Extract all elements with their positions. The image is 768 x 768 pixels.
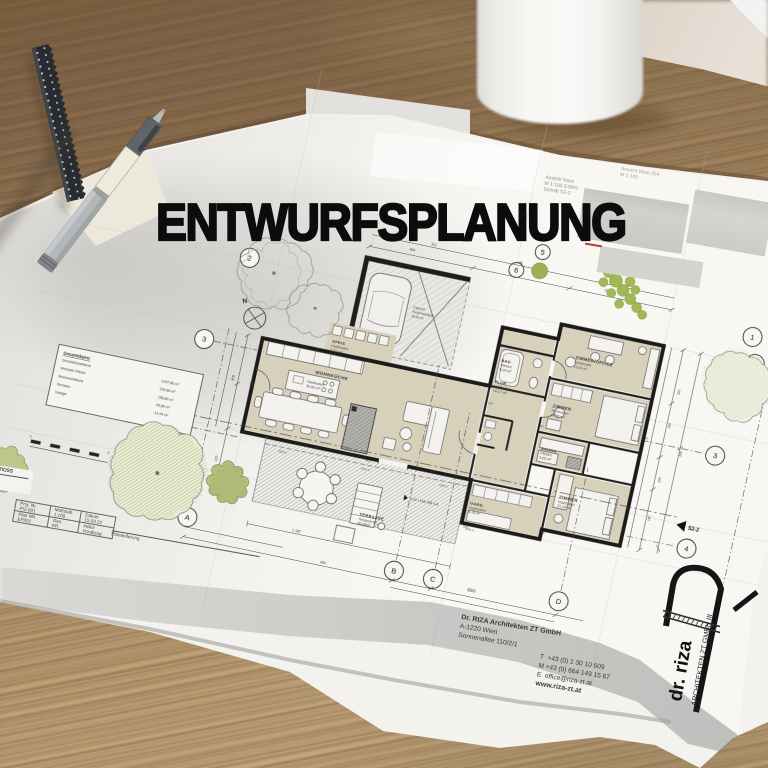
svg-text:650: 650	[467, 587, 477, 595]
svg-text:1 187: 1 187	[292, 528, 302, 534]
svg-text:645: 645	[678, 451, 683, 457]
svg-text:860: 860	[320, 560, 326, 565]
svg-text:190: 190	[667, 423, 672, 429]
svg-text:80: 80	[541, 530, 545, 535]
svg-text:98: 98	[519, 260, 524, 265]
svg-text:8: 8	[107, 450, 110, 454]
svg-text:S2-2: S2-2	[687, 526, 699, 534]
svg-text:255: 255	[657, 477, 662, 483]
svg-text:225: 225	[214, 455, 219, 461]
svg-text:140: 140	[647, 515, 652, 521]
svg-text:390: 390	[677, 389, 682, 395]
svg-text:405: 405	[231, 375, 236, 381]
svg-text:0: 0	[29, 434, 32, 438]
